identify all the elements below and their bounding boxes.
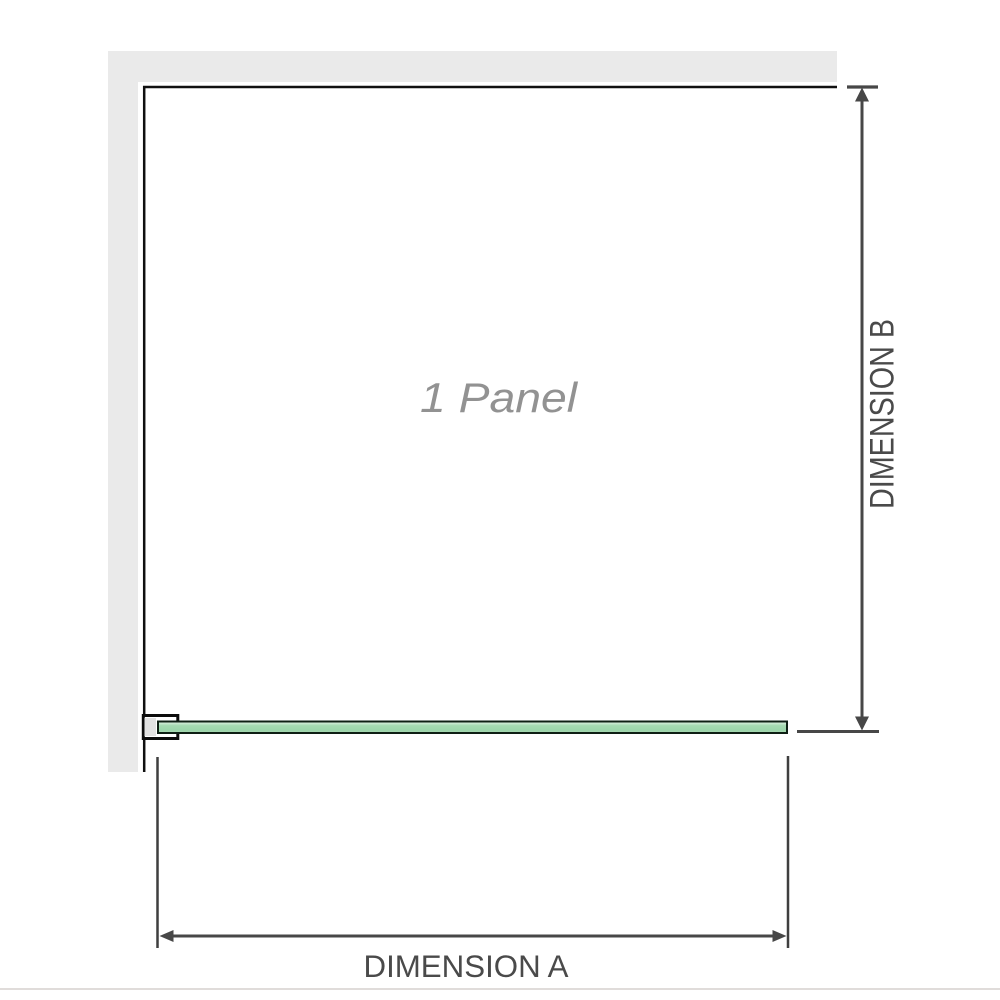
svg-text:DIMENSION B: DIMENSION B — [864, 319, 902, 509]
svg-text:1 Panel: 1 Panel — [420, 374, 579, 421]
svg-text:DIMENSION A: DIMENSION A — [364, 948, 569, 984]
